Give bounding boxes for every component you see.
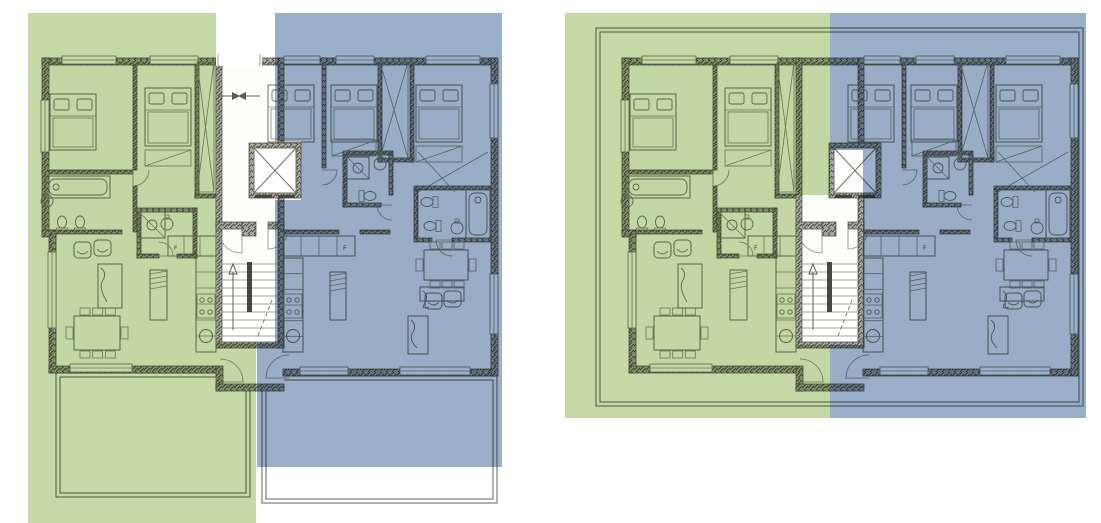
elevator-door [278, 195, 295, 198]
stair-divider [247, 262, 252, 312]
floor-plans-drawing: FFFF [0, 0, 1101, 523]
elevator [249, 143, 301, 198]
wall-segment [848, 222, 864, 229]
wall-segment [822, 222, 836, 236]
floor-plans-page: FFFF [0, 0, 1101, 523]
stair-divider [827, 262, 832, 312]
elevator-door [255, 195, 272, 198]
upper-floor-plan-unit-b-highlight [830, 13, 1086, 418]
wall-segment [216, 222, 242, 229]
wall-segment [216, 58, 222, 348]
wall-segment [242, 222, 256, 236]
wall-segment [796, 222, 822, 229]
elevator-door [835, 195, 852, 198]
entrance-opening [216, 54, 262, 66]
ground-floor-plan-unit-b-highlight [257, 13, 502, 467]
upper-floor-plan-unit-a-highlight [565, 13, 830, 418]
